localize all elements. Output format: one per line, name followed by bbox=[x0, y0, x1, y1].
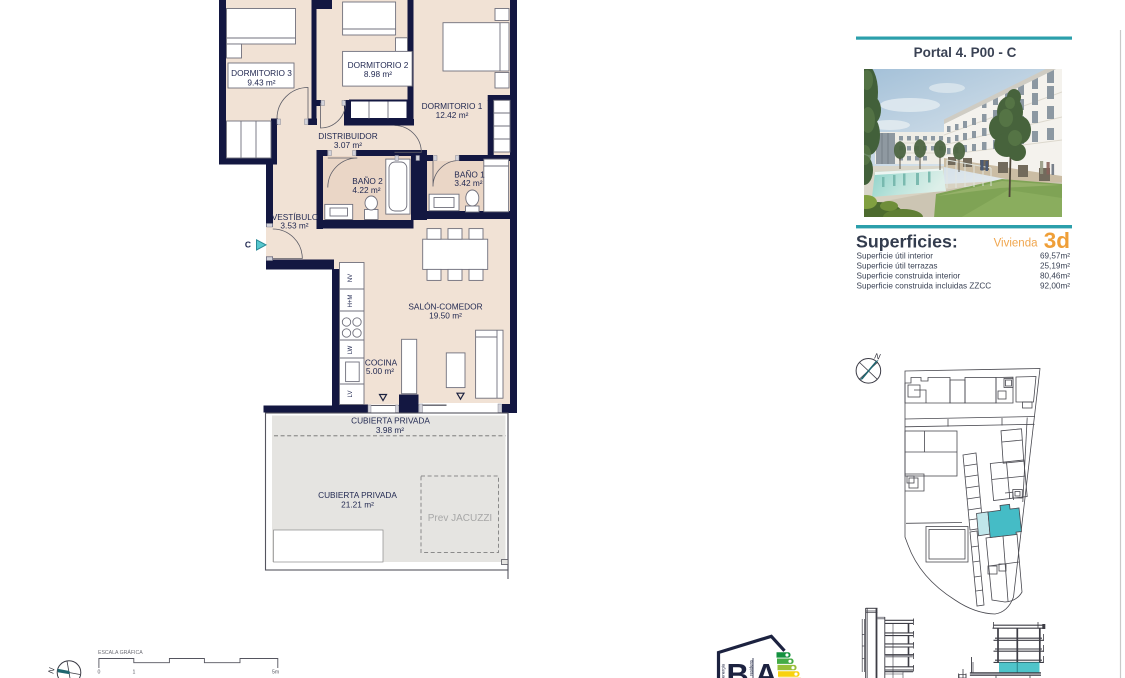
svg-text:69,57m²: 69,57m² bbox=[1040, 252, 1070, 261]
svg-text:energia: energia bbox=[721, 663, 726, 678]
svg-text:4.22 m²: 4.22 m² bbox=[352, 185, 380, 195]
svg-text:LW: LW bbox=[348, 345, 354, 354]
svg-text:Prev JACUZZI: Prev JACUZZI bbox=[428, 513, 492, 524]
svg-text:Superficies:: Superficies: bbox=[856, 232, 958, 252]
svg-text:Superficie construida interior: Superficie construida interior bbox=[857, 272, 961, 281]
svg-text:21.21 m²: 21.21 m² bbox=[341, 500, 374, 510]
svg-text:1: 1 bbox=[133, 670, 136, 676]
svg-text:C: C bbox=[245, 239, 251, 249]
svg-text:B: B bbox=[727, 657, 749, 678]
svg-text:5m: 5m bbox=[272, 670, 279, 676]
svg-text:3d: 3d bbox=[1044, 228, 1070, 253]
svg-text:LV: LV bbox=[348, 391, 354, 398]
svg-text:19.50 m²: 19.50 m² bbox=[429, 311, 462, 321]
svg-text:Superficie útil terrazas: Superficie útil terrazas bbox=[857, 261, 938, 270]
svg-text:25,19m²: 25,19m² bbox=[1040, 261, 1070, 270]
svg-text:CUBIERTA PRIVADA: CUBIERTA PRIVADA bbox=[318, 490, 397, 500]
svg-text:CUBIERTA PRIVADA: CUBIERTA PRIVADA bbox=[351, 416, 430, 426]
svg-text:3.07 m²: 3.07 m² bbox=[334, 140, 362, 150]
svg-text:H+M: H+M bbox=[348, 295, 354, 308]
svg-text:Portal 4. P00 - C: Portal 4. P00 - C bbox=[914, 45, 1017, 60]
svg-text:ESCALA GRÁFICA: ESCALA GRÁFICA bbox=[98, 649, 143, 656]
svg-text:80,46m²: 80,46m² bbox=[1040, 272, 1070, 281]
svg-text:3.98 m²: 3.98 m² bbox=[376, 425, 404, 435]
svg-text:Superficie útil interior: Superficie útil interior bbox=[857, 252, 934, 261]
svg-text:8.98 m²: 8.98 m² bbox=[364, 69, 392, 79]
svg-text:5.00 m²: 5.00 m² bbox=[366, 366, 394, 376]
svg-text:9.43 m²: 9.43 m² bbox=[247, 77, 275, 87]
svg-text:0: 0 bbox=[98, 670, 101, 676]
svg-text:Vivienda: Vivienda bbox=[994, 238, 1039, 250]
svg-text:92,00m²: 92,00m² bbox=[1040, 281, 1070, 290]
svg-text:Superficie construida incluida: Superficie construida incluidas ZZCC bbox=[857, 281, 992, 290]
svg-text:12.42 m²: 12.42 m² bbox=[436, 110, 469, 120]
svg-text:3.53 m²: 3.53 m² bbox=[280, 220, 308, 230]
svg-text:3.42 m²: 3.42 m² bbox=[454, 178, 482, 188]
svg-text:A: A bbox=[755, 657, 777, 678]
svg-text:NV: NV bbox=[348, 274, 354, 282]
